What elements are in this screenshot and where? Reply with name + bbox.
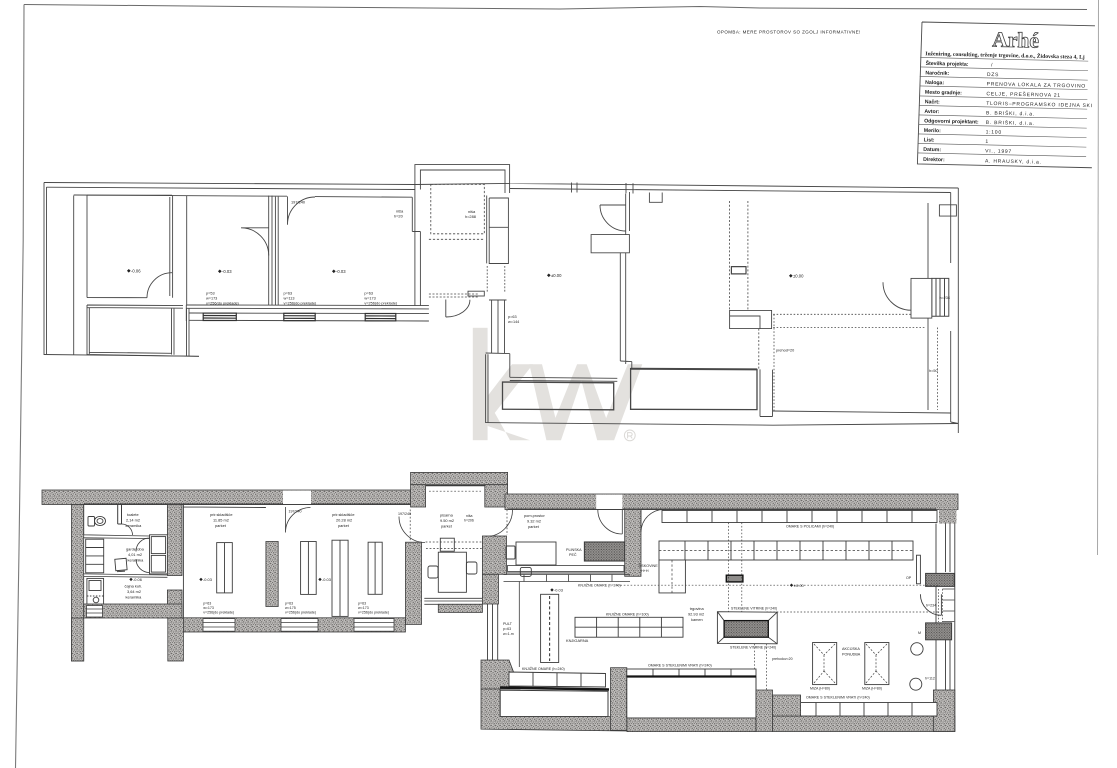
svg-text:v=256(do preklade): v=256(do preklade) — [364, 302, 398, 306]
svg-text:Merilo:: Merilo: — [924, 128, 941, 134]
svg-text:DZS: DZS — [987, 72, 999, 78]
svg-text:parket: parket — [441, 524, 453, 529]
svg-text:-0.06: -0.06 — [133, 577, 142, 582]
svg-text:-0.03: -0.03 — [322, 577, 331, 582]
svg-text:parket: parket — [338, 523, 350, 528]
svg-text:p=63: p=63 — [503, 627, 511, 631]
svg-text:garderoba: garderoba — [126, 547, 145, 552]
svg-text:toalete: toalete — [127, 512, 139, 517]
svg-text:1:100: 1:100 — [986, 129, 1002, 135]
svg-text:B. BRIŠKI, d.i.a.: B. BRIŠKI, d.i.a. — [986, 109, 1035, 117]
svg-text:h=20: h=20 — [394, 214, 404, 219]
svg-text:p=63: p=63 — [364, 292, 373, 296]
svg-text:-0.03: -0.03 — [203, 577, 212, 582]
svg-text:4,01 m2: 4,01 m2 — [128, 552, 142, 557]
svg-text:M: M — [918, 631, 921, 635]
svg-text:KNJIŽNE OMARE (h=240): KNJIŽNE OMARE (h=240) — [578, 583, 621, 588]
svg-text:Mesto gradnje:: Mesto gradnje: — [925, 90, 962, 97]
svg-text:w=175: w=175 — [285, 606, 296, 610]
svg-text:v=256(do preklade): v=256(do preklade) — [285, 611, 316, 615]
svg-text:p=63: p=63 — [285, 602, 293, 606]
svg-text:TISKOVINE: TISKOVINE — [638, 564, 658, 568]
svg-text:OMARE S STEKLENIMI VRATI (h=24: OMARE S STEKLENIMI VRATI (h=240) — [648, 664, 712, 668]
svg-text:h=206: h=206 — [464, 519, 474, 523]
svg-text:prir.skladišče: prir.skladišče — [332, 512, 355, 517]
svg-text:11.85 m2: 11.85 m2 — [213, 518, 229, 523]
svg-text:PLINSKA: PLINSKA — [566, 548, 582, 552]
svg-text:OP: OP — [906, 576, 912, 580]
svg-text:h=288: h=288 — [465, 214, 476, 219]
svg-text:AKCIJSKA: AKCIJSKA — [842, 647, 860, 651]
svg-text:Arhé: Arhé — [992, 28, 1039, 53]
svg-text:197/240: 197/240 — [291, 200, 306, 205]
svg-text:OPOMBA: MERE PROSTOROV SO: OPOMBA: MERE PROSTOROV SO ZGOLJ INFORMAT… — [717, 30, 861, 35]
svg-text:w=113: w=113 — [284, 297, 295, 301]
svg-text:-0.03: -0.03 — [336, 269, 346, 274]
svg-text:p=63: p=63 — [508, 315, 517, 319]
svg-text:w=144: w=144 — [508, 320, 519, 324]
svg-text:pisarna: pisarna — [440, 513, 454, 518]
svg-text:±0.00: ±0.00 — [551, 273, 562, 278]
svg-text:STEKLENE VITRINE (h=240): STEKLENE VITRINE (h=240) — [730, 646, 776, 650]
svg-text:Datum:: Datum: — [923, 147, 941, 153]
svg-text:KNJIŽNE OMARE (h=100): KNJIŽNE OMARE (h=100) — [606, 612, 649, 617]
svg-text:p=63: p=63 — [284, 292, 293, 296]
svg-text:parket: parket — [215, 523, 227, 528]
svg-text:h=234: h=234 — [939, 296, 950, 300]
svg-text:9.32 m2: 9.32 m2 — [527, 519, 541, 524]
svg-text:v=256(do preklade): v=256(do preklade) — [284, 302, 318, 306]
svg-text:PONUDBA: PONUDBA — [842, 653, 861, 657]
svg-text:Naročnik:: Naročnik: — [925, 70, 949, 77]
svg-text:STEKLENE VITRINE (h=240): STEKLENE VITRINE (h=240) — [731, 607, 777, 611]
svg-text:1: 1 — [985, 139, 989, 145]
svg-text:KNJIŽNE OMARE (h=240): KNJIŽNE OMARE (h=240) — [522, 666, 565, 671]
svg-text:p=63: p=63 — [358, 602, 366, 606]
svg-text:keramika: keramika — [126, 523, 143, 528]
svg-text:OMARE S POLICAMI (h=240): OMARE S POLICAMI (h=240) — [786, 525, 834, 529]
svg-text:20.28 m2: 20.28 m2 — [336, 518, 352, 523]
svg-text:keramika: keramika — [126, 595, 143, 600]
svg-text:B. BRIŠKI, d.i.a.: B. BRIŠKI, d.i.a. — [986, 119, 1035, 127]
svg-text:92.93 m2: 92.93 m2 — [688, 612, 704, 617]
svg-text:niša: niša — [466, 514, 472, 518]
svg-text:KNJIGARNA: KNJIGARNA — [566, 638, 589, 643]
svg-text:p=63: p=63 — [203, 602, 211, 606]
svg-text:prehod=20: prehod=20 — [776, 349, 794, 353]
svg-text:2,14 m2: 2,14 m2 — [126, 518, 140, 523]
svg-text:h=234: h=234 — [926, 604, 936, 608]
svg-text:197/240: 197/240 — [398, 512, 411, 516]
svg-text:trgovina: trgovina — [690, 606, 705, 611]
svg-text:h=112: h=112 — [925, 677, 935, 681]
svg-text:Naloga:: Naloga: — [925, 80, 944, 86]
svg-text:PEČ: PEČ — [569, 552, 577, 557]
svg-text:197/240: 197/240 — [289, 510, 302, 514]
svg-text:OMARE S STEKLENIMI VRATI (h=24: OMARE S STEKLENIMI VRATI (h=240) — [806, 696, 870, 700]
svg-text:prehodov=20: prehodov=20 — [772, 657, 793, 661]
svg-text:PULT: PULT — [503, 622, 513, 626]
svg-text:w=173: w=173 — [206, 297, 217, 301]
svg-text:Načrt:: Načrt: — [925, 99, 940, 105]
svg-text:H+H: H+H — [641, 569, 649, 573]
svg-text:-0.03: -0.03 — [222, 269, 232, 274]
svg-text:Direktor:: Direktor: — [923, 157, 945, 163]
svg-text:-0.03: -0.03 — [554, 588, 563, 593]
svg-text:MIZA (H=80): MIZA (H=80) — [862, 687, 882, 691]
svg-text:parket: parket — [528, 524, 540, 529]
svg-text:±0.00: ±0.00 — [793, 274, 804, 279]
svg-text:čajna kuh.: čajna kuh. — [125, 584, 143, 589]
svg-text:3,64 m2: 3,64 m2 — [127, 589, 141, 594]
svg-text:kamen: kamen — [691, 617, 703, 622]
svg-text:pom.prostor: pom.prostor — [524, 513, 545, 518]
svg-text:v=256(do preklade): v=256(do preklade) — [358, 611, 389, 615]
svg-text:A. HRAUSKY, d.i.a.: A. HRAUSKY, d.i.a. — [985, 158, 1042, 165]
svg-text:v=256(do preklade): v=256(do preklade) — [203, 611, 234, 615]
svg-text:-0.06: -0.06 — [131, 269, 141, 274]
svg-text:h=50: h=50 — [929, 369, 938, 373]
svg-text:w=1.m: w=1.m — [503, 632, 514, 636]
svg-text:VI., 1997: VI., 1997 — [985, 148, 1012, 155]
svg-text:prir.skladišče: prir.skladišče — [210, 512, 233, 517]
svg-text:±0.00: ±0.00 — [794, 583, 805, 588]
svg-text:Avtor:: Avtor: — [924, 109, 939, 115]
svg-text:List:: List: — [924, 137, 935, 143]
svg-text:p=53: p=53 — [206, 292, 215, 296]
svg-text:v=256(do preklade): v=256(do preklade) — [206, 302, 240, 306]
svg-text:Odgovorni projektant:: Odgovorni projektant: — [924, 118, 979, 125]
svg-text:MIZA (H=80): MIZA (H=80) — [810, 687, 830, 691]
svg-text:w=173: w=173 — [358, 606, 369, 610]
svg-text:w=173: w=173 — [203, 606, 214, 610]
svg-text:w=173: w=173 — [364, 297, 375, 301]
svg-text:9.50 m2: 9.50 m2 — [440, 518, 454, 523]
svg-text:/: / — [991, 63, 993, 69]
